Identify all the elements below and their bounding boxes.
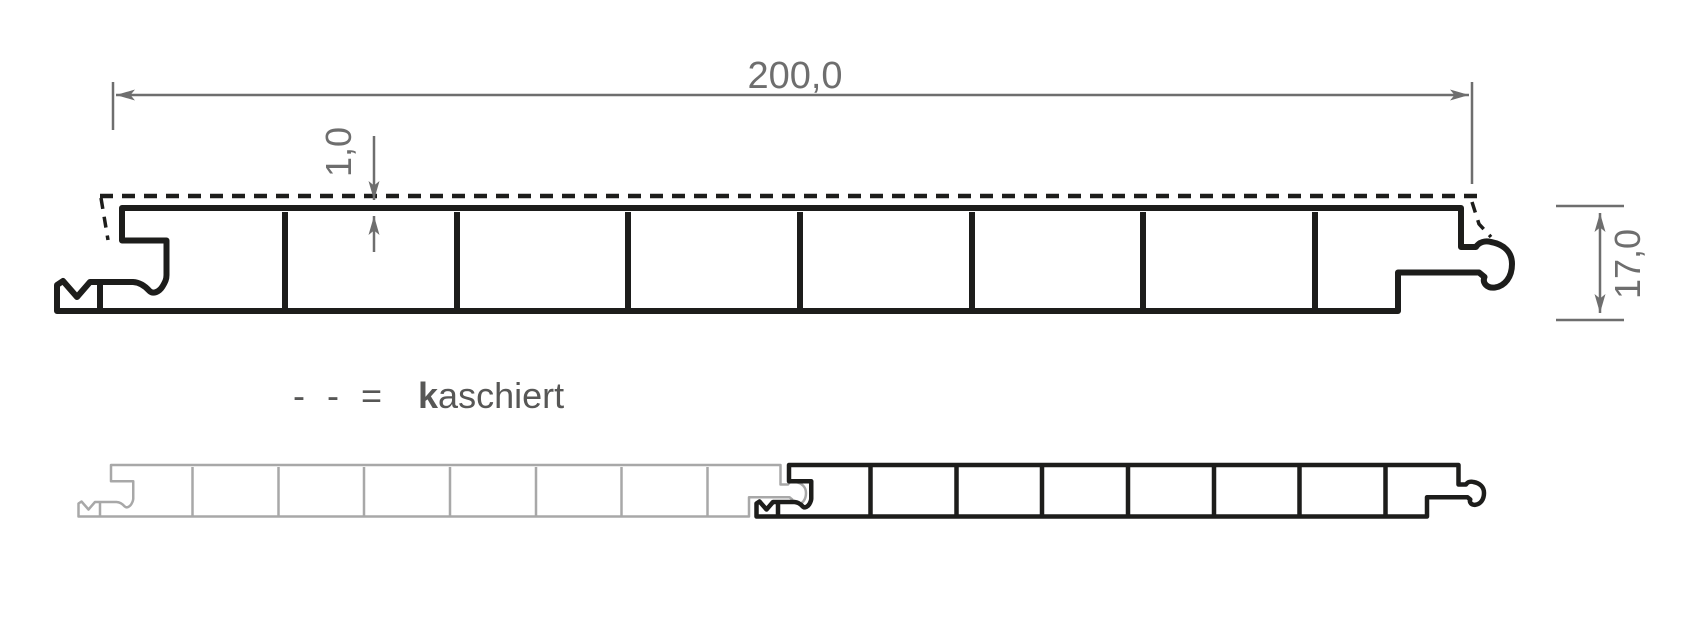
lamination-dimension-label: 1,0 <box>318 127 359 177</box>
dimension-width: 200,0 <box>113 55 1472 184</box>
profile-main <box>57 208 1512 311</box>
width-dimension-label: 200,0 <box>747 55 842 97</box>
lamination-dash-right-edge <box>1472 202 1491 237</box>
legend-term-bold: k <box>418 375 439 416</box>
lamination-dash-left-edge <box>101 198 108 240</box>
profile-left-gray <box>79 465 807 517</box>
legend-dash-symbol: - - = <box>293 375 404 416</box>
profile-technical-drawing: 200,0 1,0 17,0 - - = kaschiert <box>0 0 1694 614</box>
legend-kaschiert: - - = kaschiert <box>293 375 564 416</box>
profile-right-dark <box>757 465 1485 517</box>
interlocked-profiles-section <box>79 465 1485 517</box>
main-profile-section: 200,0 1,0 17,0 <box>57 55 1648 320</box>
legend-term-rest: aschiert <box>438 375 564 416</box>
height-dimension-label: 17,0 <box>1607 229 1648 299</box>
dimension-height: 17,0 <box>1556 206 1648 320</box>
drawing-canvas: 200,0 1,0 17,0 - - = kaschiert <box>0 0 1694 614</box>
